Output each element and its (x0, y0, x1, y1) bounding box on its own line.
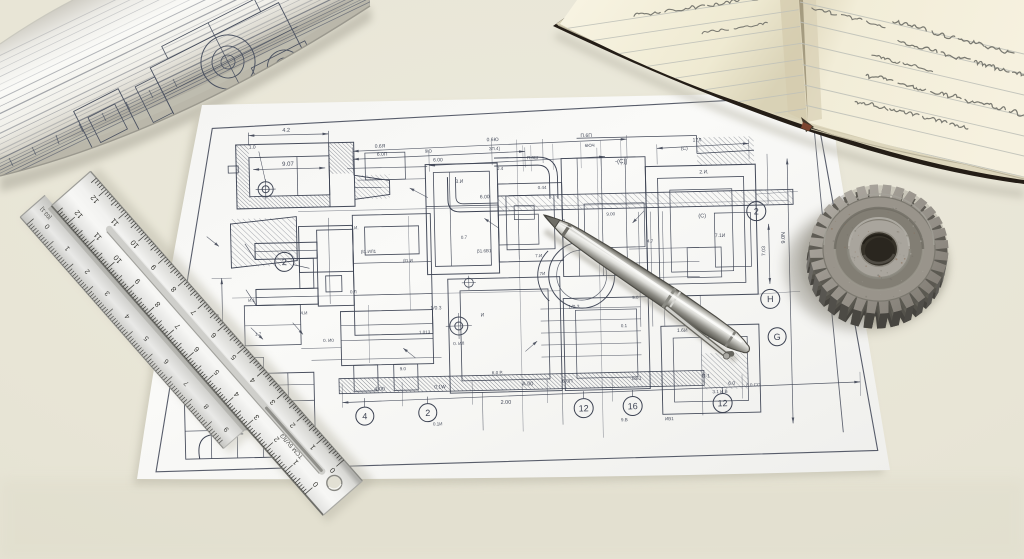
svg-text:0.1W: 0.1W (434, 384, 446, 390)
svg-text:17Л: 17Л (693, 137, 702, 143)
svg-text:0.1: 0.1 (621, 323, 628, 328)
svg-text:2: 2 (754, 206, 759, 216)
svg-text:К.0 Р.: К.0 Р. (492, 370, 503, 375)
svg-text:2: 2 (282, 257, 287, 267)
svg-text:(С): (С) (681, 146, 688, 152)
svg-text:6ЮЧ: 6ЮЧ (585, 143, 595, 148)
svg-text:И: И (481, 312, 485, 318)
svg-text:4.00: 4.00 (374, 387, 385, 393)
svg-text:16: 16 (628, 401, 638, 411)
svg-text:7.0З: 7.0З (761, 246, 767, 256)
svg-text:(С): (С) (698, 213, 706, 219)
svg-text:1.013: 1.013 (419, 330, 431, 335)
svg-text:J.4: J.4 (497, 166, 504, 171)
svg-text:З.1 И.В: З.1 И.В (712, 389, 727, 394)
svg-text:9.07: 9.07 (282, 162, 294, 168)
svg-text:0.6Я: 0.6Я (375, 144, 386, 150)
svg-text:2.00: 2.00 (500, 400, 511, 406)
svg-text:7.И: 7.И (535, 253, 542, 258)
svg-text:9Ю: 9Ю (425, 149, 433, 154)
svg-text:β1.6В1: β1.6В1 (477, 248, 492, 253)
svg-text:12: 12 (718, 398, 728, 408)
svg-text:0.44: 0.44 (538, 185, 547, 190)
svg-text:7И: 7И (540, 271, 546, 276)
svg-text:0. И0: 0. И0 (323, 338, 334, 343)
svg-text:ИВ1: ИВ1 (665, 416, 674, 421)
svg-text:0.1И: 0.1И (433, 421, 443, 426)
svg-text:1.0: 1.0 (249, 145, 256, 151)
svg-text:4: 4 (362, 411, 367, 421)
svg-text:0.Л: 0.Л (350, 289, 357, 294)
svg-text:9.0N: 9.0N (781, 232, 787, 244)
svg-text:-(С)]: -(С)] (615, 159, 627, 165)
svg-text:6.00: 6.00 (433, 157, 443, 163)
svg-text:β1.И: β1.И (403, 258, 413, 263)
svg-text:1/0.3: 1/0.3 (430, 305, 441, 311)
svg-text:1/0.3: 1/0.3 (568, 304, 579, 310)
svg-text:6.0: 6.0 (728, 381, 735, 387)
svg-text:ЗП.4]: ЗП.4] (489, 146, 500, 151)
svg-text:П.6Ш: П.6Ш (527, 155, 538, 160)
svg-text:β1.ИЛ1: β1.ИЛ1 (361, 249, 377, 254)
svg-text:9.0: 9.0 (400, 366, 407, 371)
svg-text:2: 2 (425, 408, 430, 418)
svg-text:G: G (774, 332, 781, 342)
svg-text:9.00: 9.00 (606, 211, 615, 216)
svg-text:8.0.CO: 8.0.CO (746, 382, 761, 387)
svg-text:0. ИЛ: 0. ИЛ (453, 341, 464, 346)
svg-text:6.0П: 6.0П (562, 378, 573, 384)
svg-text:A.00: A.00 (522, 381, 533, 387)
svg-text:EE1: EE1 (632, 376, 642, 382)
svg-text:7.1И: 7.1И (715, 233, 726, 239)
svg-text:П-1: П-1 (702, 373, 710, 379)
svg-text:3.И: 3.И (455, 179, 463, 185)
svg-text:0.7: 0.7 (461, 235, 468, 240)
svg-text:4.И: 4.И (300, 310, 307, 315)
svg-text:9.В: 9.В (621, 417, 628, 422)
svg-text:0.6Ю: 0.6Ю (487, 137, 499, 143)
svg-text:4.7: 4.7 (647, 239, 654, 244)
svg-text:П.6П: П.6П (580, 133, 592, 139)
svg-text:J.И.: J.И. (350, 225, 358, 230)
svg-text:H: H (767, 294, 774, 304)
svg-text:6.00: 6.00 (480, 194, 490, 200)
svg-text:И.1: И.1 (248, 298, 256, 303)
svg-text:4.2: 4.2 (282, 128, 290, 134)
svg-text:12: 12 (579, 403, 589, 413)
svg-text:2.И,: 2.И, (699, 169, 708, 175)
